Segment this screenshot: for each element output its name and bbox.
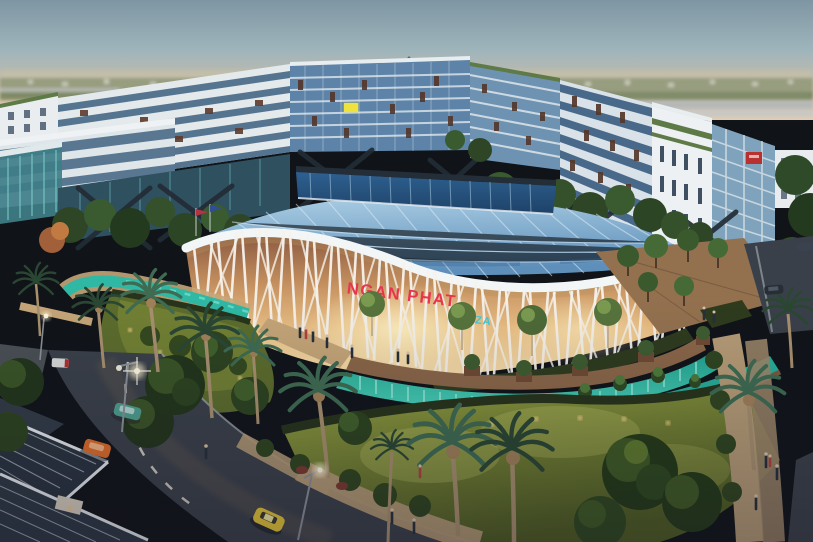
architectural-rendering: NGAN PHAT PLAZA [0, 0, 813, 542]
dusk-overlay [0, 0, 813, 542]
